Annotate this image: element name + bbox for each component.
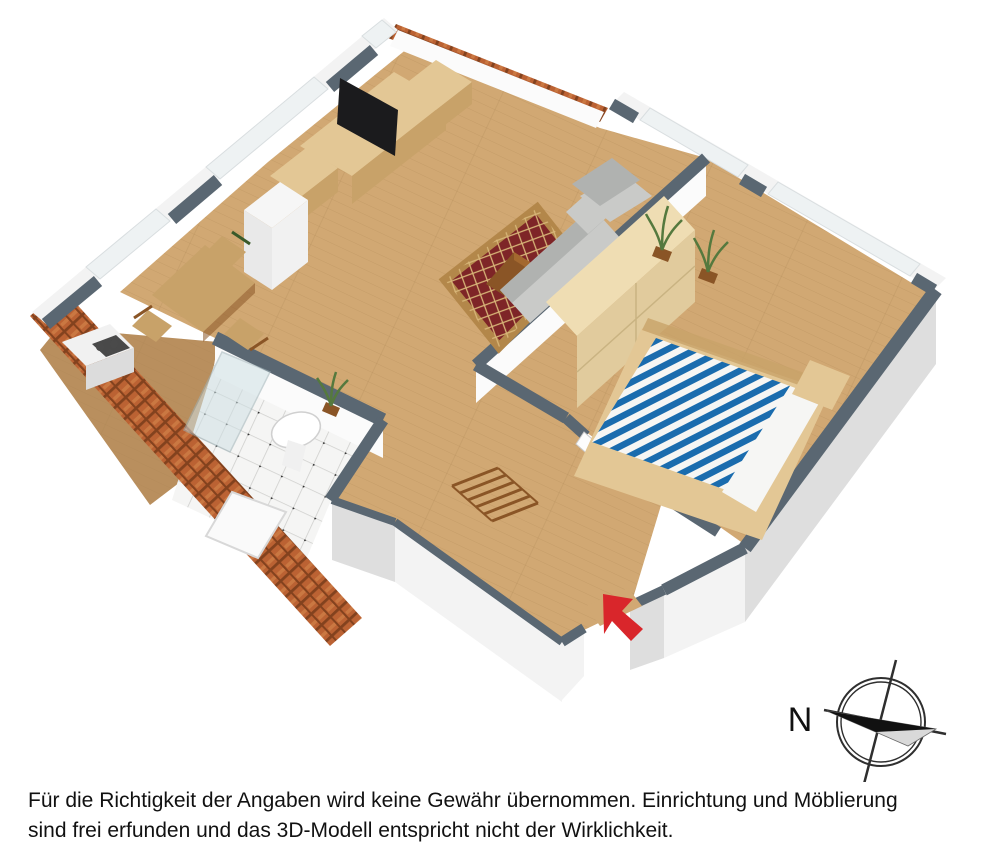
floor-plan-3d: N — [0, 0, 1000, 782]
disclaimer-line-2: sind frei erfunden und das 3D-Modell ent… — [28, 816, 988, 846]
disclaimer: Für die Richtigkeit der Angaben wird kei… — [28, 786, 988, 846]
disclaimer-line-1: Für die Richtigkeit der Angaben wird kei… — [28, 786, 988, 816]
compass: N — [788, 660, 946, 782]
floors — [40, 48, 930, 642]
stove-burner-3 — [107, 349, 113, 355]
stove-burner-2 — [110, 340, 118, 348]
stove-burner-1 — [96, 343, 104, 351]
compass-north-label: N — [788, 701, 813, 739]
floor-plan-page: N Für die Richtigkeit der Angaben wird k… — [0, 0, 1000, 859]
